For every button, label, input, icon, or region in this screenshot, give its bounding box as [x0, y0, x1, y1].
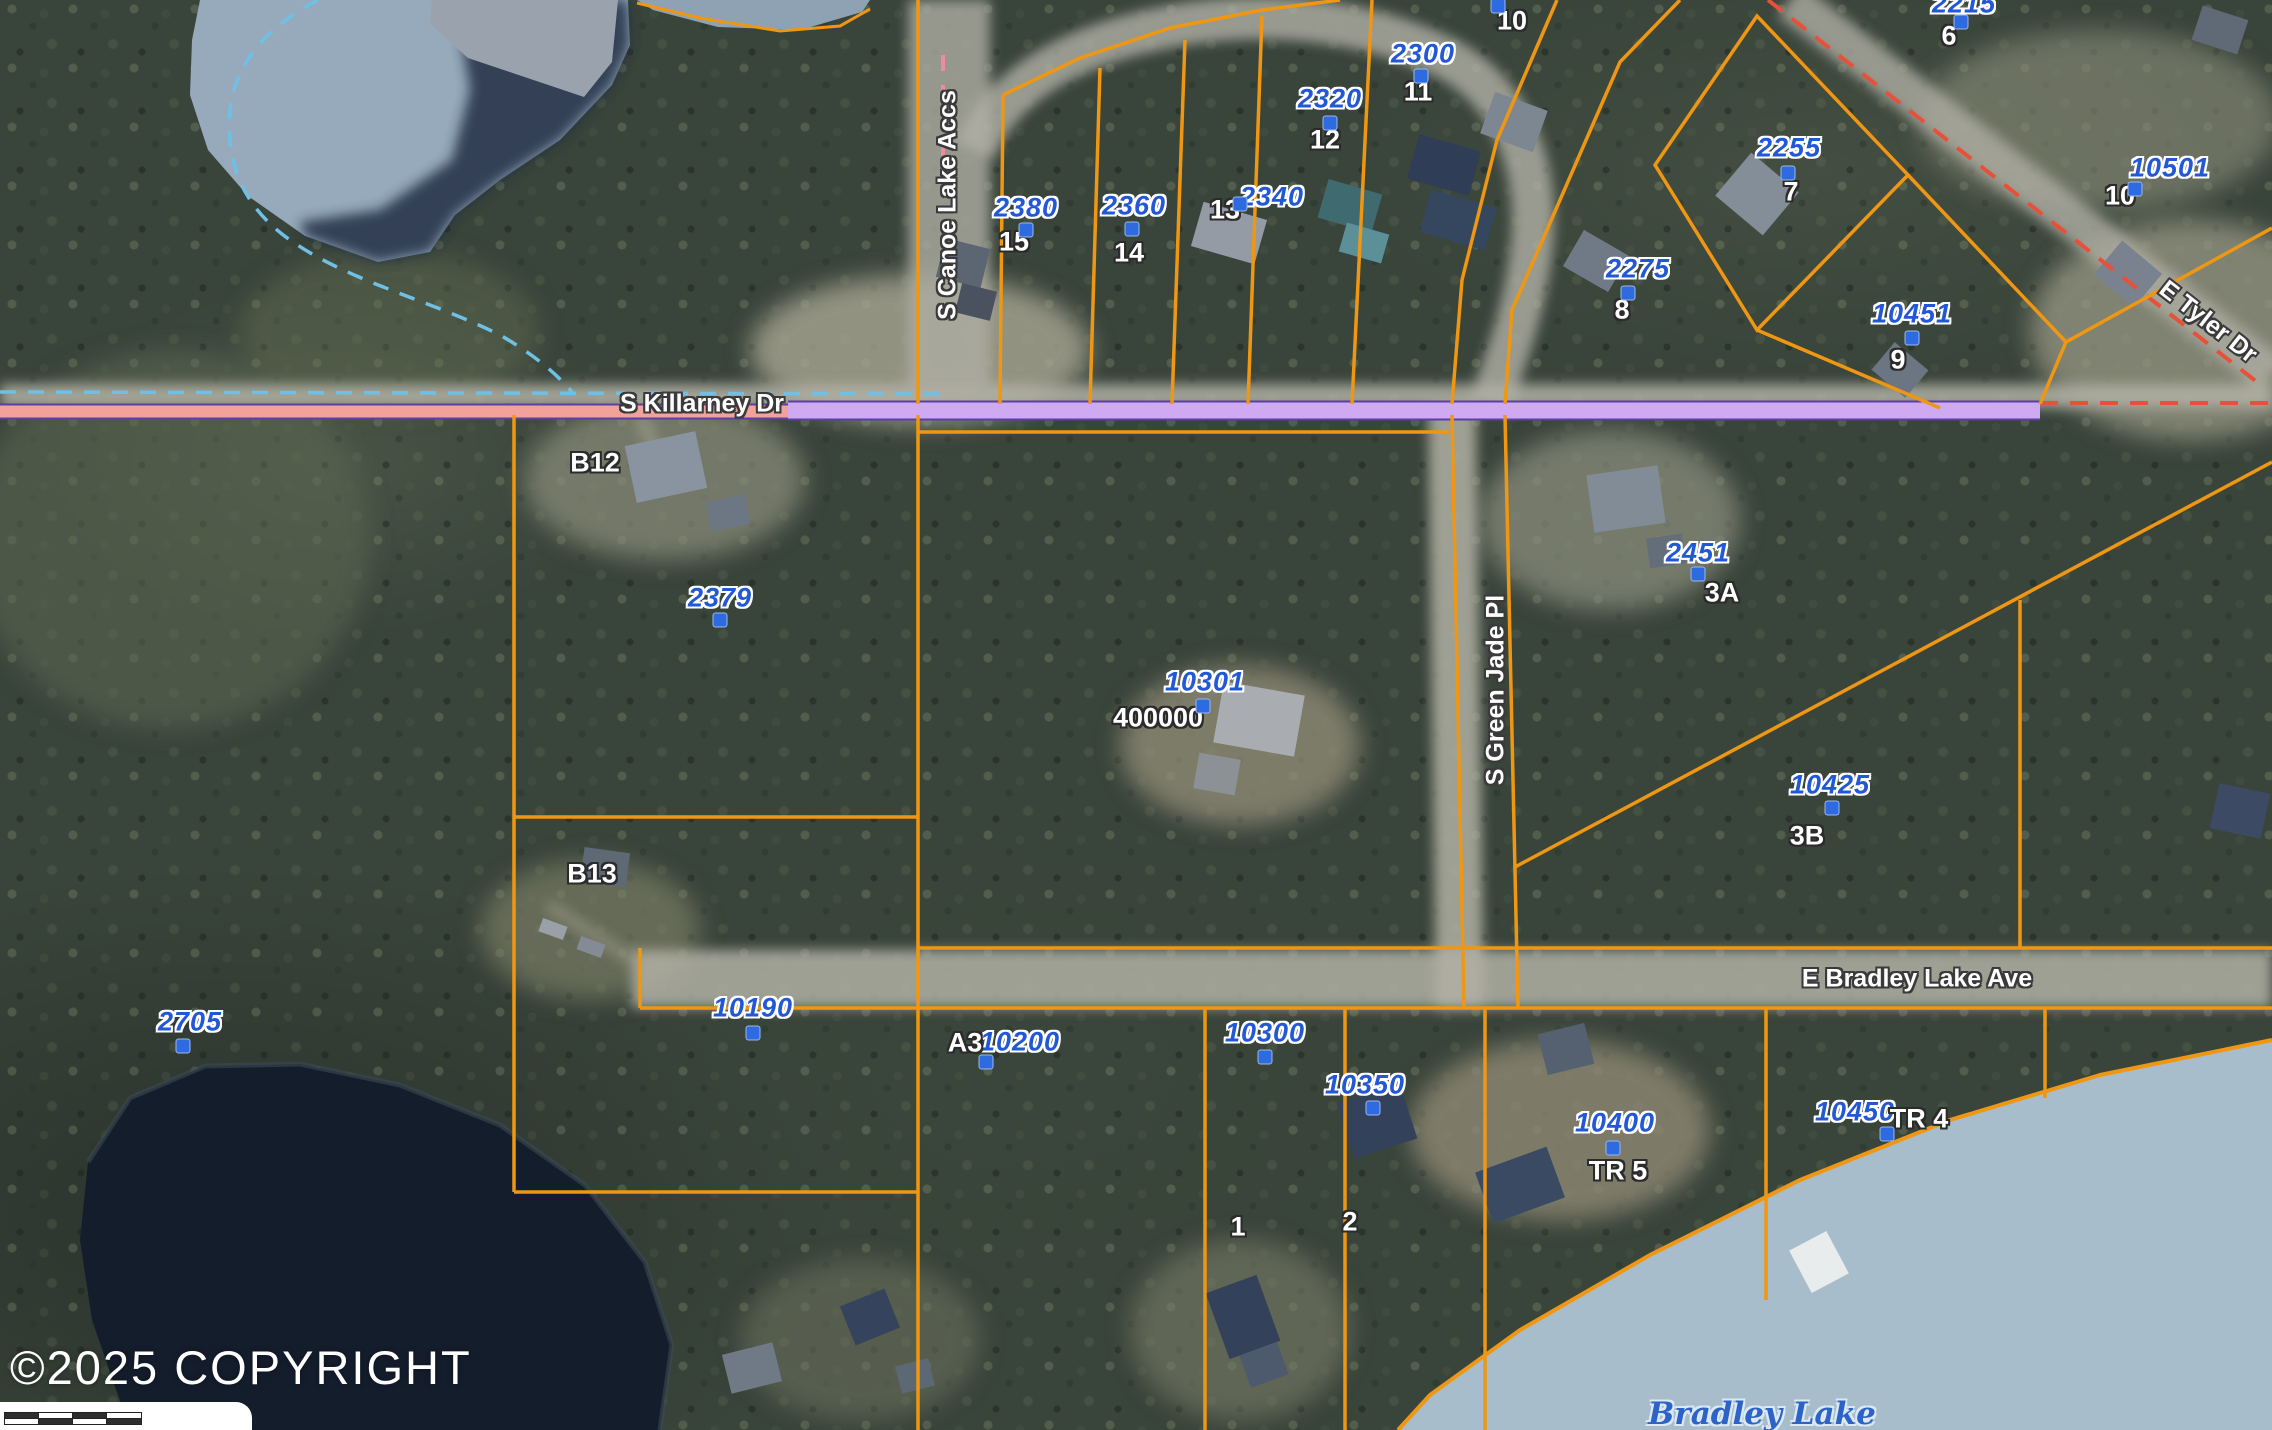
- waterbody-label-bradley-lake: Bradley Lake: [1648, 1396, 1876, 1430]
- lot-number-label-15: 15: [999, 227, 1029, 258]
- lot-number-label-2: 2: [1342, 1207, 1357, 1238]
- parcel-point-marker: [176, 1039, 191, 1054]
- buildings: [538, 5, 2270, 1393]
- lot-number-label-b12: B12: [570, 448, 620, 479]
- parcel-point-marker: [1366, 1101, 1381, 1116]
- parcel-point-marker: [1125, 222, 1140, 237]
- parcel-address-label-10200: 10200: [980, 1027, 1060, 1058]
- stream-line: [0, 0, 940, 394]
- parcel-point-marker: [746, 1026, 761, 1041]
- bradley-lake: [1398, 1040, 2272, 1430]
- parcel-lines: [514, 0, 2272, 1430]
- parcel-point-marker: [1954, 15, 1969, 30]
- parcel-point-marker: [2128, 182, 2143, 197]
- parcel-point-marker: [1606, 1141, 1621, 1156]
- lot-number-label-a3: A3: [948, 1028, 983, 1059]
- lake-top-left: [190, 0, 630, 262]
- parcel-point-marker: [979, 1055, 994, 1070]
- parcel-point-marker: [1825, 801, 1840, 816]
- lot-number-label-1: 1: [1230, 1212, 1245, 1243]
- parcel-address-label-2451: 2451: [1666, 538, 1730, 569]
- lot-number-label-14: 14: [1114, 238, 1144, 269]
- scalebar-panel: [0, 1402, 252, 1430]
- lot-number-label-9: 9: [1890, 345, 1905, 376]
- pond-top-center: [637, 0, 870, 31]
- lot-number-label-13: 13: [1210, 195, 1240, 226]
- parcel-address-label-2275: 2275: [1606, 254, 1670, 285]
- lot-number-label-10: 10: [1497, 6, 1527, 37]
- lot-number-label-tr-4: TR 4: [1890, 1104, 1949, 1135]
- parcel-point-marker: [1621, 286, 1636, 301]
- street-label-e-bradley-lake-ave: E Bradley Lake Ave: [1802, 965, 2032, 994]
- parcel-point-marker: [1905, 331, 1920, 346]
- parcel-point-marker: [1323, 116, 1338, 131]
- parcel-point-marker: [1414, 69, 1429, 84]
- parcel-point-marker: [1781, 166, 1796, 181]
- parcel-address-label-10450: 10450: [1815, 1097, 1895, 1128]
- lot-number-label-3a: 3A: [1705, 578, 1740, 609]
- map-viewport[interactable]: 2380236023402320230022152275225510501104…: [0, 0, 2272, 1430]
- parcel-point-marker: [1233, 197, 1248, 212]
- parcel-address-label-10190: 10190: [713, 993, 793, 1024]
- parcel-point-marker: [713, 613, 728, 628]
- copyright-watermark: ©2025 COPYRIGHT: [10, 1340, 472, 1395]
- parcel-point-marker: [1019, 223, 1034, 238]
- parcel-address-label-2320: 2320: [1298, 84, 1362, 115]
- parcel-address-label-2300: 2300: [1391, 39, 1455, 70]
- parcel-address-label-10301: 10301: [1165, 667, 1245, 698]
- parcel-address-label-2360: 2360: [1102, 191, 1166, 222]
- parcel-address-label-2255: 2255: [1757, 133, 1821, 164]
- lot-number-label-11: 11: [1404, 77, 1433, 108]
- lot-number-label-8: 8: [1614, 295, 1629, 326]
- parcel-address-label-2380: 2380: [994, 193, 1058, 224]
- section-dash-tyler: [1768, 0, 2272, 403]
- lot-number-label-tr-5: TR 5: [1589, 1156, 1648, 1187]
- street-label-s-canoe-lake-accs: S Canoe Lake Accs: [934, 90, 963, 320]
- section-line-killarney: [0, 402, 2040, 420]
- parcel-point-marker: [1196, 699, 1211, 714]
- parcel-point-marker: [1258, 1050, 1273, 1065]
- parcel-point-marker: [1691, 567, 1706, 582]
- parcel-point-marker: [1880, 1127, 1895, 1142]
- lot-number-label-7: 7: [1783, 177, 1798, 208]
- terrain-clearings: [0, 30, 2272, 1420]
- parcel-address-label-2215: 2215: [1932, 0, 1996, 20]
- parcel-address-label-10501: 10501: [2130, 153, 2210, 184]
- parcel-address-label-10451: 10451: [1872, 299, 1952, 330]
- parcel-address-label-10425: 10425: [1790, 770, 1870, 801]
- parcel-address-label-2340: 2340: [1240, 182, 1304, 213]
- parcel-address-label-2379: 2379: [688, 583, 752, 614]
- parcel-point-marker: [1491, 0, 1506, 14]
- map-base-layer: [0, 0, 2272, 1430]
- parcel-address-label-2705: 2705: [158, 1007, 222, 1038]
- street-label-s-green-jade-pl: S Green Jade Pl: [1482, 595, 1511, 785]
- lot-number-label-b13: B13: [567, 859, 617, 890]
- parcel-address-label-10300: 10300: [1225, 1018, 1305, 1049]
- parcel-address-label-10350: 10350: [1325, 1070, 1405, 1101]
- street-label-e-tyler-dr: E Tyler Dr: [2153, 275, 2262, 369]
- lot-number-label-12: 12: [1310, 125, 1340, 156]
- lot-number-label-10: 10: [2105, 181, 2135, 212]
- parcel-address-label-10400: 10400: [1575, 1108, 1655, 1139]
- lot-number-label-400000: 400000: [1113, 703, 1203, 734]
- lot-number-label-3b: 3B: [1790, 821, 1825, 852]
- roads: [0, 0, 2272, 1010]
- street-label-s-killarney-dr: S Killarney Dr: [620, 390, 784, 419]
- lot-number-label-6: 6: [1941, 21, 1956, 52]
- scalebar: [4, 1412, 142, 1425]
